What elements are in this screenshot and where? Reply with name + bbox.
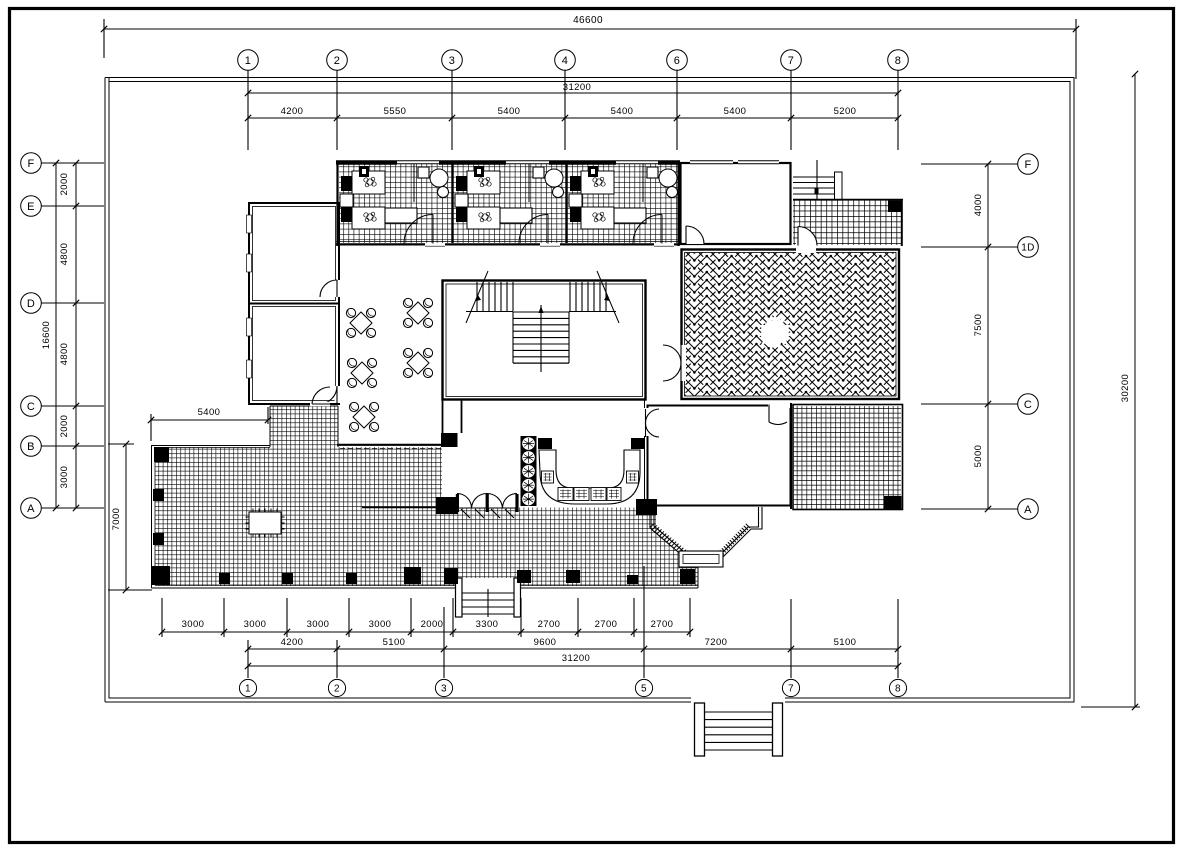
svg-text:2700: 2700 — [538, 619, 561, 630]
svg-text:B: B — [27, 441, 35, 453]
svg-text:2: 2 — [334, 55, 341, 67]
svg-text:F: F — [27, 158, 34, 170]
svg-text:2000: 2000 — [59, 173, 70, 196]
svg-text:2000: 2000 — [421, 619, 444, 630]
svg-text:5400: 5400 — [498, 106, 521, 117]
svg-text:8: 8 — [895, 684, 901, 695]
svg-text:8: 8 — [895, 55, 902, 67]
svg-text:7000: 7000 — [111, 508, 122, 531]
svg-text:31200: 31200 — [562, 653, 590, 664]
svg-text:3000: 3000 — [182, 619, 205, 630]
svg-text:1D: 1D — [1021, 243, 1035, 254]
svg-text:5100: 5100 — [834, 637, 857, 648]
svg-text:4200: 4200 — [281, 106, 304, 117]
svg-text:3000: 3000 — [307, 619, 330, 630]
svg-text:46600: 46600 — [573, 15, 603, 26]
svg-text:5400: 5400 — [724, 106, 747, 117]
svg-text:5400: 5400 — [611, 106, 634, 117]
svg-text:7: 7 — [788, 55, 795, 67]
svg-text:F: F — [1024, 159, 1031, 171]
svg-text:4000: 4000 — [973, 194, 984, 217]
svg-text:A: A — [27, 503, 35, 515]
svg-text:4800: 4800 — [59, 343, 70, 366]
svg-text:5000: 5000 — [973, 445, 984, 468]
svg-text:3: 3 — [441, 684, 447, 695]
svg-text:31200: 31200 — [563, 82, 591, 93]
svg-text:3300: 3300 — [476, 619, 499, 630]
svg-text:4: 4 — [562, 55, 569, 67]
svg-text:2000: 2000 — [59, 415, 70, 438]
svg-text:5200: 5200 — [834, 106, 857, 117]
svg-text:E: E — [27, 201, 35, 213]
svg-text:5550: 5550 — [384, 106, 407, 117]
svg-text:7: 7 — [788, 684, 794, 695]
svg-text:3: 3 — [449, 55, 456, 67]
svg-text:3000: 3000 — [369, 619, 392, 630]
svg-text:4200: 4200 — [281, 637, 304, 648]
svg-text:3000: 3000 — [59, 466, 70, 489]
svg-text:5100: 5100 — [383, 637, 406, 648]
svg-text:9600: 9600 — [534, 637, 557, 648]
svg-text:2: 2 — [334, 684, 340, 695]
svg-text:5: 5 — [641, 684, 647, 695]
svg-text:7500: 7500 — [973, 314, 984, 337]
svg-text:A: A — [1024, 504, 1032, 516]
svg-text:C: C — [1024, 399, 1032, 411]
svg-text:7200: 7200 — [705, 637, 728, 648]
svg-text:1: 1 — [245, 55, 252, 67]
svg-text:C: C — [27, 401, 35, 413]
svg-text:6: 6 — [674, 55, 681, 67]
svg-text:1: 1 — [245, 684, 251, 695]
svg-text:30200: 30200 — [1120, 374, 1131, 402]
svg-text:5400: 5400 — [198, 407, 221, 418]
svg-text:2700: 2700 — [595, 619, 618, 630]
svg-text:16600: 16600 — [41, 321, 52, 349]
svg-text:4800: 4800 — [59, 243, 70, 266]
svg-text:2700: 2700 — [651, 619, 674, 630]
svg-text:D: D — [27, 298, 35, 310]
svg-text:3000: 3000 — [244, 619, 267, 630]
